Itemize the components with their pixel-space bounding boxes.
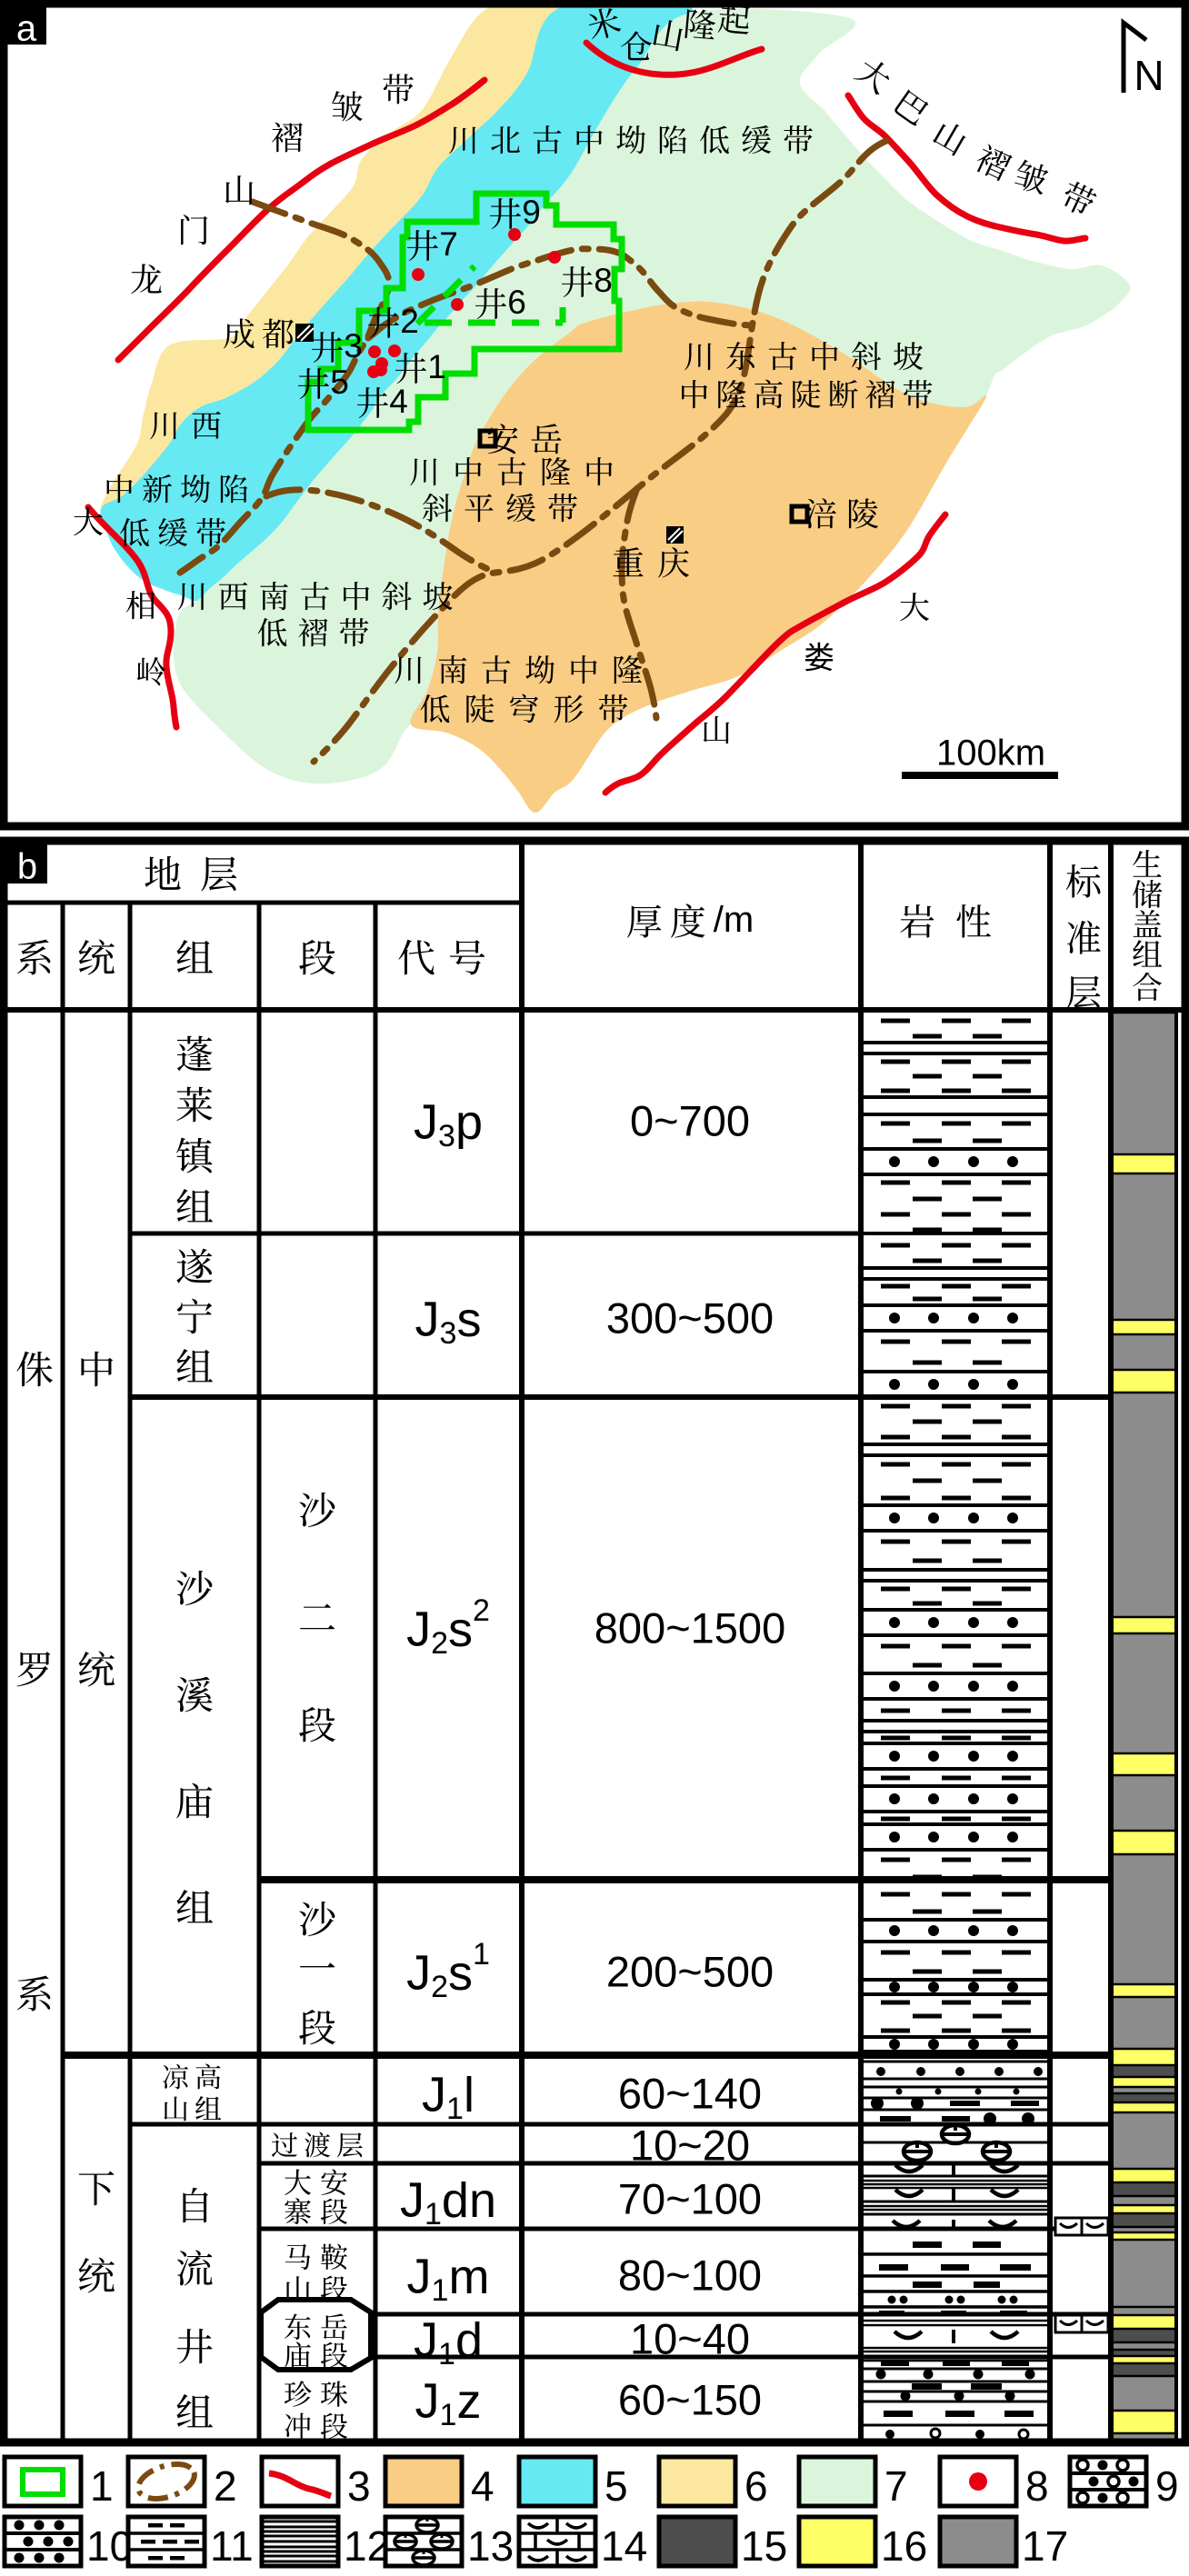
- svg-text:8: 8: [1025, 2453, 1049, 2513]
- svg-text:下: 下: [77, 2160, 115, 2214]
- svg-text:沙: 沙: [298, 1891, 336, 1945]
- svg-text:皱: 皱: [331, 83, 364, 129]
- svg-text:组: 组: [175, 1879, 214, 1933]
- svg-text:遂: 遂: [175, 1238, 214, 1293]
- svg-text:200~500: 200~500: [606, 1939, 774, 2000]
- svg-text:标: 标: [1065, 854, 1102, 906]
- svg-text:段: 段: [298, 1696, 336, 1751]
- svg-text:井6: 井6: [474, 277, 526, 326]
- svg-text:涪陵: 涪陵: [804, 490, 888, 536]
- svg-text:地层: 地层: [144, 845, 256, 900]
- svg-text:中新坳陷: 中新坳陷: [104, 465, 256, 510]
- svg-text:低陡穹形带: 低陡穹形带: [420, 685, 643, 730]
- svg-text:门: 门: [177, 206, 210, 253]
- svg-text:100km: 100km: [936, 724, 1045, 776]
- svg-text:段: 段: [298, 1999, 336, 2053]
- svg-text:9: 9: [1155, 2453, 1179, 2513]
- svg-text:溪: 溪: [175, 1666, 214, 1721]
- svg-text:流: 流: [175, 2240, 214, 2294]
- svg-text:二: 二: [298, 1589, 336, 1643]
- svg-text:大: 大: [899, 584, 930, 628]
- svg-text:过渡层: 过渡层: [271, 2123, 369, 2163]
- svg-text:0~700: 0~700: [630, 1088, 750, 1149]
- svg-text:J1m: J1m: [407, 2238, 490, 2310]
- svg-text:组: 组: [175, 1338, 214, 1393]
- svg-text:带: 带: [382, 65, 415, 112]
- svg-text:斜平缓带: 斜平缓带: [422, 484, 589, 529]
- svg-text:娄: 娄: [804, 634, 834, 678]
- svg-text:自: 自: [175, 2177, 214, 2232]
- svg-text:镇: 镇: [175, 1127, 214, 1182]
- svg-text:10: 10: [86, 2513, 133, 2571]
- svg-text:14: 14: [601, 2513, 647, 2571]
- svg-text:龙: 龙: [130, 255, 163, 302]
- svg-text:庙段: 庙段: [284, 2333, 356, 2374]
- svg-text:低褶带: 低褶带: [257, 609, 380, 654]
- svg-text:3: 3: [347, 2453, 371, 2513]
- svg-text:川南古坳中隆: 川南古坳中隆: [394, 646, 655, 691]
- svg-text:4: 4: [471, 2453, 495, 2513]
- svg-text:井2: 井2: [366, 296, 419, 345]
- svg-text:统: 统: [77, 1641, 115, 1695]
- svg-text:井8: 井8: [560, 255, 613, 305]
- svg-text:莱: 莱: [175, 1076, 214, 1131]
- svg-text:准: 准: [1065, 911, 1102, 963]
- svg-text:统: 统: [77, 929, 115, 983]
- svg-text:中: 中: [77, 1341, 115, 1395]
- svg-text:系: 系: [15, 929, 54, 983]
- svg-text:井4: 井4: [355, 376, 408, 425]
- svg-text:仓: 仓: [620, 23, 653, 69]
- svg-text:系: 系: [15, 1965, 54, 2020]
- svg-text:一: 一: [298, 1940, 336, 1994]
- svg-text:组: 组: [175, 1178, 214, 1233]
- svg-text:70~100: 70~100: [618, 2166, 762, 2227]
- svg-text:井9: 井9: [488, 187, 541, 236]
- svg-text:厚度/m: 厚度/m: [626, 894, 754, 946]
- svg-text:b: b: [17, 838, 37, 890]
- svg-text:16: 16: [881, 2513, 927, 2571]
- svg-text:宁: 宁: [175, 1288, 214, 1343]
- svg-text:组: 组: [175, 929, 214, 983]
- svg-text:6: 6: [744, 2453, 768, 2513]
- svg-text:山: 山: [701, 706, 732, 751]
- svg-text:山: 山: [223, 166, 255, 213]
- svg-text:山组: 山组: [162, 2087, 227, 2127]
- svg-text:1: 1: [90, 2453, 114, 2513]
- svg-text:2: 2: [214, 2453, 237, 2513]
- svg-text:井5: 井5: [296, 357, 349, 406]
- svg-text:相: 相: [125, 582, 156, 626]
- svg-text:岭: 岭: [135, 648, 166, 693]
- svg-text:80~100: 80~100: [618, 2242, 762, 2303]
- svg-text:侏: 侏: [15, 1341, 54, 1395]
- svg-text:沙: 沙: [298, 1482, 336, 1536]
- svg-text:a: a: [16, 0, 37, 52]
- svg-text:5: 5: [604, 2453, 628, 2513]
- svg-text:重庆: 重庆: [612, 539, 703, 585]
- svg-text:庙: 庙: [175, 1772, 214, 1827]
- svg-text:大: 大: [73, 498, 104, 543]
- svg-text:17: 17: [1022, 2513, 1068, 2571]
- svg-text:井7: 井7: [405, 219, 458, 268]
- svg-text:13: 13: [467, 2513, 514, 2571]
- svg-text:10~20: 10~20: [630, 2112, 750, 2173]
- svg-text:10~40: 10~40: [630, 2306, 750, 2367]
- svg-text:12: 12: [344, 2513, 390, 2571]
- svg-text:岩性: 岩性: [899, 894, 1012, 946]
- svg-text:井: 井: [175, 2318, 214, 2372]
- svg-text:统: 统: [77, 2247, 115, 2301]
- svg-text:15: 15: [741, 2513, 787, 2571]
- svg-text:代号: 代号: [397, 929, 499, 983]
- svg-text:寨段: 寨段: [284, 2190, 356, 2231]
- svg-text:褶: 褶: [271, 114, 304, 160]
- svg-text:N: N: [1134, 43, 1164, 103]
- svg-text:800~1500: 800~1500: [594, 1595, 785, 1656]
- svg-text:合: 合: [1132, 964, 1163, 1008]
- svg-text:300~500: 300~500: [606, 1285, 774, 1346]
- svg-text:中隆高陡断褶带: 中隆高陡断褶带: [679, 371, 940, 415]
- svg-text:罗: 罗: [15, 1641, 54, 1695]
- svg-text:组: 组: [175, 2383, 214, 2438]
- svg-text:60~150: 60~150: [618, 2367, 762, 2428]
- svg-text:层: 层: [1065, 965, 1102, 1017]
- svg-text:7: 7: [884, 2453, 908, 2513]
- svg-text:蓬: 蓬: [175, 1025, 214, 1080]
- svg-text:成都: 成都: [223, 310, 301, 356]
- svg-text:川北古中坳陷低缓带: 川北古中坳陷低缓带: [448, 116, 824, 161]
- svg-text:沙: 沙: [175, 1560, 214, 1614]
- svg-text:J1dn: J1dn: [400, 2162, 496, 2233]
- svg-text:11: 11: [210, 2513, 254, 2571]
- svg-text:段: 段: [298, 929, 336, 983]
- svg-text:川西: 川西: [149, 402, 233, 446]
- svg-text:低缓带: 低缓带: [119, 509, 234, 554]
